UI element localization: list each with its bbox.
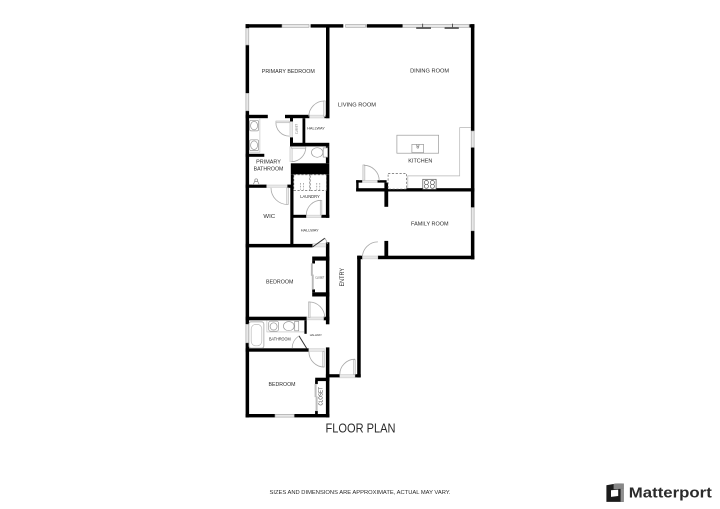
svg-text:WIC: WIC xyxy=(263,214,275,220)
svg-text:Matterport: Matterport xyxy=(629,486,712,502)
svg-text:LIVING ROOM: LIVING ROOM xyxy=(338,102,376,108)
svg-text:PRIMARY BEDROOM: PRIMARY BEDROOM xyxy=(262,69,315,75)
svg-text:CLOSET: CLOSET xyxy=(319,387,325,406)
svg-text:FLOOR PLAN: FLOOR PLAN xyxy=(326,422,396,436)
svg-text:LAUNDRY: LAUNDRY xyxy=(300,194,320,199)
svg-text:DINING ROOM: DINING ROOM xyxy=(410,69,449,75)
svg-text:BEDROOM: BEDROOM xyxy=(269,382,296,388)
svg-text:HALLWAY: HALLWAY xyxy=(310,333,322,337)
svg-text:HALLWAY: HALLWAY xyxy=(301,229,319,233)
svg-text:PRIMARY: PRIMARY xyxy=(256,160,281,166)
svg-text:SIZES AND DIMENSIONS ARE APPRO: SIZES AND DIMENSIONS ARE APPROXIMATE, AC… xyxy=(270,490,451,496)
svg-text:CLOSET: CLOSET xyxy=(315,276,324,280)
svg-text:KITCHEN: KITCHEN xyxy=(408,158,432,164)
svg-text:CLOSET: CLOSET xyxy=(295,124,299,134)
svg-text:BATHROOM: BATHROOM xyxy=(269,337,291,342)
svg-text:ENTRY: ENTRY xyxy=(339,267,346,286)
svg-text:BATHROOM: BATHROOM xyxy=(254,167,284,173)
svg-text:BEDROOM: BEDROOM xyxy=(266,279,293,285)
svg-text:FAMILY ROOM: FAMILY ROOM xyxy=(411,222,449,228)
svg-text:HALLWAY: HALLWAY xyxy=(307,126,325,130)
